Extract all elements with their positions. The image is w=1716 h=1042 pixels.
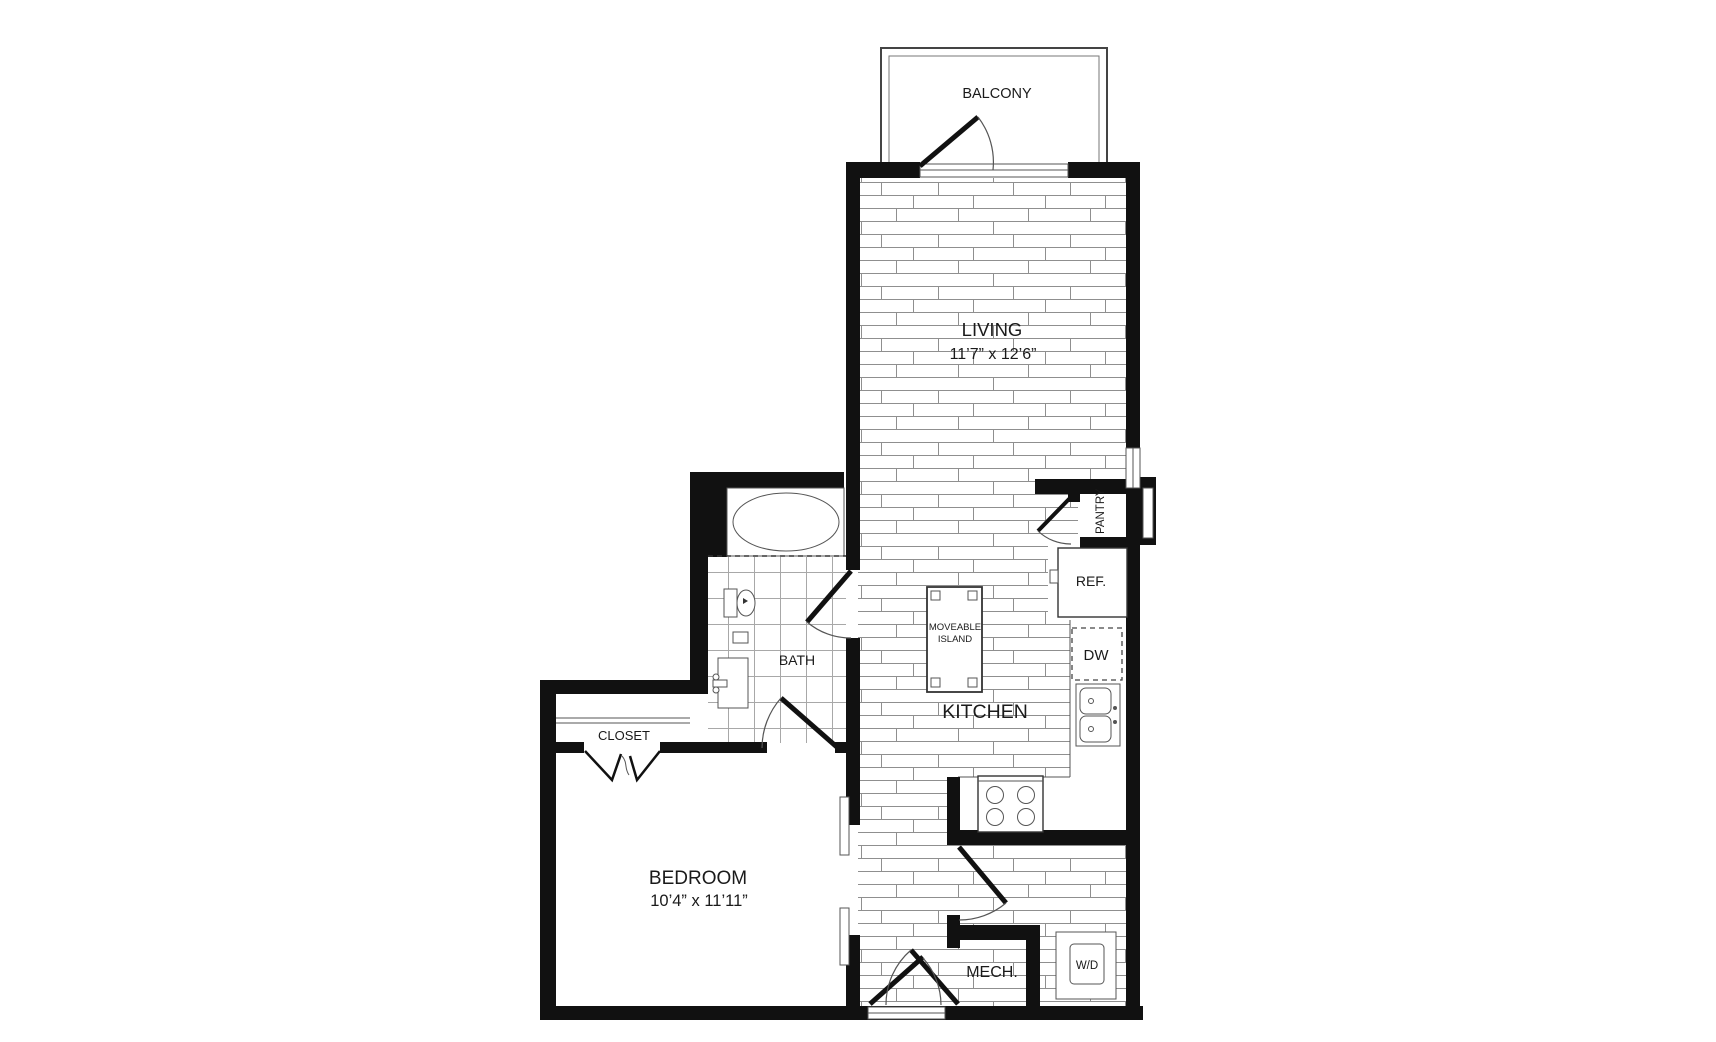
balcony-label: BALCONY [962,86,1032,102]
bath-tile-floor [708,557,846,743]
stove [978,776,1043,832]
closet-shelf [556,718,690,723]
toilet [724,589,755,617]
closet-label: CLOSET [598,728,650,743]
island-label-line1: MOVEABLE [929,622,981,633]
bedroom-sliding-doors [840,797,849,965]
kitchen-label: KITCHEN [942,701,1028,723]
living-label: LIVING [962,319,1023,340]
window-pantry [1143,488,1153,538]
floor-plan-drawing: BALCONY LIVING 11’7” x 12’6” KITCHEN BED… [0,0,1716,1042]
entry-threshold [868,1007,945,1019]
balcony-door-threshold [920,164,1068,177]
bedroom-dimensions: 10’4” x 11’11” [650,892,748,910]
balcony-walls [881,48,1107,162]
pantry-label: PANTRY [1095,488,1107,534]
vanity-sink [713,658,748,708]
island-label-line2: ISLAND [938,634,972,645]
floor-plan-page: BALCONY LIVING 11’7” x 12’6” KITCHEN BED… [0,0,1716,1042]
dw-label: DW [1084,647,1110,664]
living-dimensions: 11’7” x 12’6” [950,346,1037,363]
closet-bifold-doors [585,751,660,780]
bathtub [708,488,846,556]
window-living-right [1126,448,1140,488]
wd-label: W/D [1076,960,1098,972]
bedroom-label: BEDROOM [649,868,747,889]
bath-label: BATH [779,652,815,668]
toilet-paper-holder [733,632,748,643]
mech-label: MECH. [966,964,1018,981]
kitchen-sink [1076,684,1120,746]
ref-label: REF. [1076,573,1106,589]
